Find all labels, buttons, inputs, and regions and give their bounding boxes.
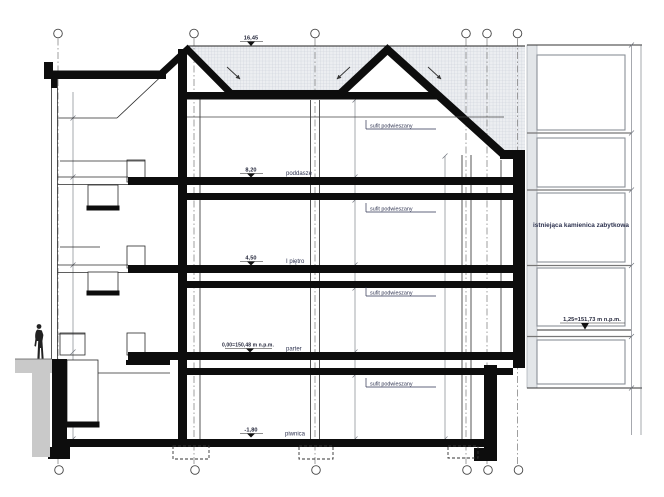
slab-parter: [128, 352, 525, 360]
flat-roof-band: [44, 71, 166, 80]
neighbor-building: istniejąca kamienica zabytkowa 1,25=151,…: [527, 43, 642, 436]
wall-head: [51, 79, 57, 88]
neighbor-building-label: istniejąca kamienica zabytkowa: [533, 222, 629, 229]
central-wall: [178, 49, 187, 445]
ceiling-label-1: sufit podwieszany: [370, 124, 413, 130]
ceiling-label-3: sufit podwieszany: [370, 291, 413, 297]
right-footing: [474, 448, 497, 461]
floor-label-parter: parter: [286, 347, 302, 353]
parapet: [44, 62, 53, 79]
level-pietro-value: 4,50: [245, 256, 256, 262]
ceiling-label-2: sufit podwieszany: [370, 207, 413, 213]
level-parter-value: 0,00=150,48 m n.p.m.: [222, 343, 274, 349]
floor-label-piwnica: piwnica: [285, 432, 306, 438]
floor-label-pietro: I piętro: [286, 259, 305, 265]
level-ridge-value: 16,45: [244, 36, 259, 42]
right-wall-upper: [513, 150, 525, 368]
slab-parter-lower: [187, 368, 513, 375]
slab-piwnica: [57, 439, 497, 447]
building-section-svg: istniejąca kamienica zabytkowa 1,25=151,…: [0, 0, 664, 497]
floor-label-poddasze: poddasze: [286, 171, 313, 177]
section-drawing-sheet: istniejąca kamienica zabytkowa 1,25=151,…: [0, 0, 664, 497]
slab-poddasze-lower: [187, 193, 513, 200]
level-piwnica-value: -1,80: [244, 428, 257, 434]
ceiling-label-4: sufit podwieszany: [370, 382, 413, 388]
right-wall-basement: [484, 365, 497, 449]
slab-pietro-lower: [187, 281, 513, 288]
level-poddasze-value: 8,20: [245, 168, 256, 174]
left-basement-wall: [52, 359, 67, 448]
neighbor-level-value: 1,25=151,73 m n.p.m.: [563, 317, 621, 323]
left-footing: [48, 447, 70, 459]
